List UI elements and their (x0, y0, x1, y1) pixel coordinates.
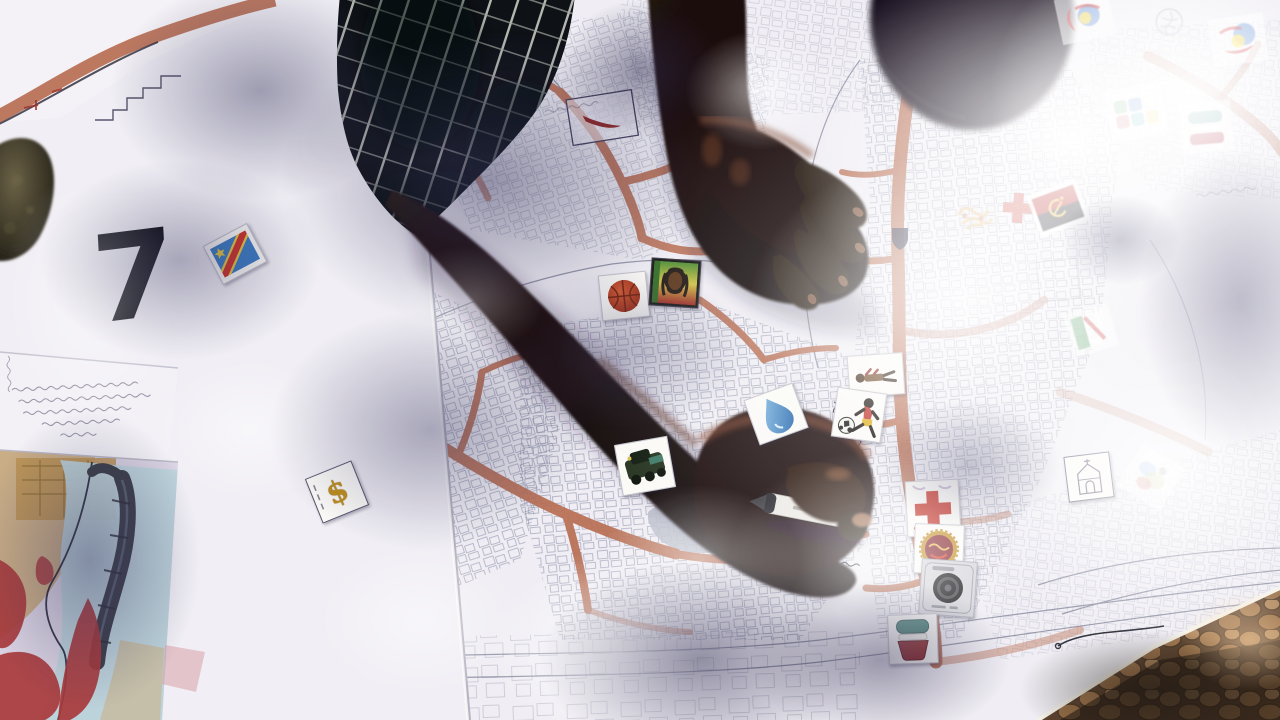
water-drop-sticker (743, 383, 808, 446)
color-swirl-logo-sticker-right (1207, 12, 1269, 67)
basketball-icon (603, 275, 645, 317)
church-facade-icon (1068, 455, 1111, 499)
multicolor-figure-sticker (1117, 443, 1186, 512)
green-red-flag-icon (1068, 307, 1114, 352)
food-container-sticker (887, 613, 939, 665)
drc-flag-sticker (203, 223, 268, 285)
multicolor-figure-icon (1122, 448, 1180, 506)
orange-scribble-icon (948, 194, 999, 240)
dollar-sign-sticker: $ (305, 460, 369, 523)
food-container-icon (891, 616, 935, 661)
crest-drawing-sticker (1144, 0, 1194, 48)
church-drawing-sticker (1063, 451, 1114, 502)
teal-red-box-icon (1183, 105, 1228, 149)
speaker-icon (921, 561, 974, 614)
color-swirl-icon (1213, 18, 1264, 62)
teal-red-box-sticker (1178, 100, 1234, 154)
crest-drawing-icon (1147, 2, 1191, 46)
orange-scribble-sticker (946, 192, 1000, 243)
sticker-layer: $ (0, 0, 1280, 720)
military-vehicle-icon (619, 440, 672, 491)
lying-person-icon (851, 358, 901, 391)
angola-flag-sticker (1026, 178, 1090, 237)
icon-grid-sticker (1104, 82, 1168, 143)
water-drop-icon (750, 388, 802, 441)
green-red-flag-sticker (1063, 303, 1119, 358)
speaker-appliance-sticker (918, 558, 978, 618)
basketball-sticker (598, 271, 651, 322)
portrait-icon (652, 261, 699, 306)
mapping-session-photo: 7 (0, 0, 1280, 720)
icon-grid (1112, 94, 1159, 129)
bob-marley-portrait-sticker (648, 257, 701, 308)
color-swirl-icon (1060, 0, 1111, 39)
military-green-sticker (614, 436, 676, 497)
angola-flag-icon (1032, 185, 1085, 232)
soccer-player-icon (834, 390, 884, 440)
color-swirl-logo-sticker-left (1054, 0, 1116, 45)
soccer-player-sticker (831, 387, 887, 443)
